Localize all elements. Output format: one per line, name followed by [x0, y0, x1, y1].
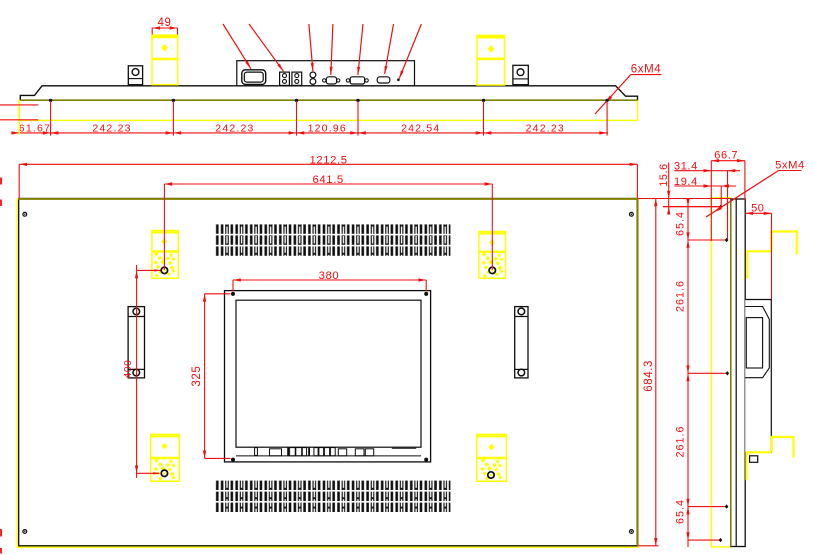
svg-text:380: 380: [319, 270, 340, 282]
svg-text:65.4: 65.4: [675, 499, 687, 524]
svg-text:261.6: 261.6: [675, 425, 687, 457]
svg-text:684.3: 684.3: [643, 360, 655, 392]
svg-text:242.23: 242.23: [215, 123, 254, 135]
svg-text:400: 400: [123, 360, 134, 379]
svg-text:641.5: 641.5: [313, 174, 344, 186]
svg-text:242.23: 242.23: [92, 123, 131, 135]
svg-text:325: 325: [191, 366, 203, 387]
svg-text:242.23: 242.23: [526, 123, 565, 135]
svg-text:5xM4: 5xM4: [775, 160, 805, 172]
svg-text:50: 50: [751, 202, 764, 214]
svg-text:261.6: 261.6: [675, 280, 687, 312]
svg-text:15.6: 15.6: [658, 163, 670, 186]
svg-text:65.4: 65.4: [675, 211, 687, 236]
svg-text:120.96: 120.96: [308, 123, 347, 135]
svg-text:242.54: 242.54: [401, 123, 440, 135]
svg-text:1212.5: 1212.5: [310, 154, 348, 166]
svg-text:6xM4: 6xM4: [631, 63, 662, 75]
